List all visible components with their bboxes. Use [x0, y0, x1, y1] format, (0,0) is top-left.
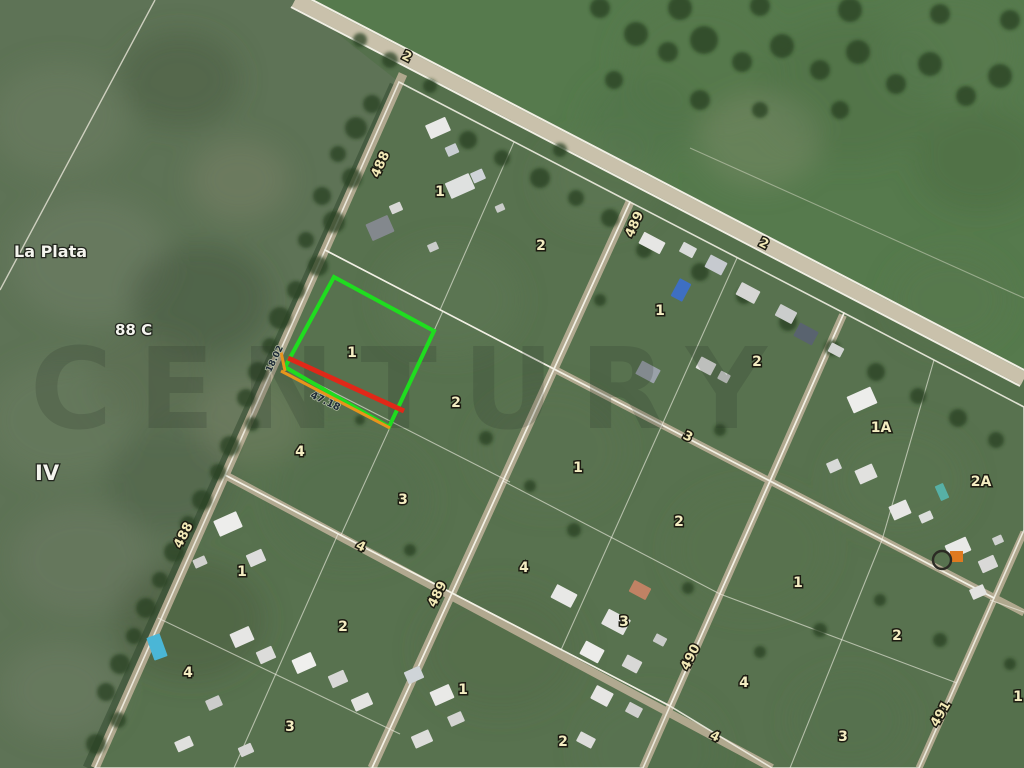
parcel-label: 4 [183, 665, 193, 681]
area-label: IV [35, 461, 60, 485]
tree [658, 42, 678, 62]
tree [530, 168, 550, 188]
tree [86, 734, 106, 754]
tree [152, 572, 168, 588]
tree [682, 582, 694, 594]
area-label: 88 C [115, 321, 152, 339]
tree [886, 74, 906, 94]
tree [813, 623, 827, 637]
parcel-label: 3 [285, 719, 295, 735]
tree [770, 34, 794, 58]
map-canvas[interactable]: CENTURY 2488489234488489490449112121A2A1… [0, 0, 1024, 768]
tree [831, 101, 849, 119]
tree [867, 363, 885, 381]
tree [567, 523, 581, 537]
tree [601, 209, 619, 227]
tree [1004, 658, 1016, 670]
parcel-label: 1 [573, 460, 583, 476]
parcel-label: 3 [838, 729, 848, 745]
tree [605, 71, 623, 89]
parcel-label: 3 [619, 614, 629, 630]
tree [404, 544, 416, 556]
parcel-label: 2 [451, 395, 461, 411]
tree [298, 232, 314, 248]
tree [874, 594, 886, 606]
tree [810, 60, 830, 80]
tree [690, 26, 718, 54]
area-label: La Plata [14, 242, 87, 261]
tree [846, 40, 870, 64]
tree [110, 712, 126, 728]
tree [97, 683, 115, 701]
tree [210, 464, 226, 480]
parcel-label: 1 [435, 184, 445, 200]
tree [754, 646, 766, 658]
tree [192, 490, 212, 510]
tree [910, 388, 926, 404]
tree [624, 22, 648, 46]
tree [382, 52, 398, 68]
tree [568, 190, 584, 206]
tree [594, 294, 606, 306]
tree [287, 281, 305, 299]
watermark-text: CENTURY [30, 325, 793, 455]
tree [553, 143, 567, 157]
tree [988, 432, 1004, 448]
tree [949, 409, 967, 427]
tree [930, 4, 950, 24]
terrain-patch [120, 32, 240, 128]
parcel-label: 2 [674, 514, 684, 530]
tree [988, 64, 1012, 88]
parcel-label: 1A [871, 420, 892, 436]
terrain-patch [190, 140, 290, 220]
parcel-label: 4 [739, 675, 749, 691]
tree [345, 117, 367, 139]
tree [1000, 10, 1020, 30]
satellite-map: CENTURY 2488489234488489490449112121A2A1… [0, 0, 1024, 768]
tree [918, 52, 942, 76]
parcel-label: 3 [398, 492, 408, 508]
parcel-label: 4 [519, 560, 529, 576]
tree [353, 33, 367, 47]
tree [933, 633, 947, 647]
tree [313, 187, 331, 205]
parcel-label: 1 [347, 345, 357, 361]
parcel-label: 1 [793, 575, 803, 591]
tree [110, 654, 130, 674]
tree [126, 628, 142, 644]
parcel-label: 1 [1013, 689, 1023, 705]
tree [308, 256, 328, 276]
parcel-label: 4 [295, 444, 305, 460]
tree [732, 52, 752, 72]
parcel-label: 2 [558, 734, 568, 750]
parcel-label: 2 [338, 619, 348, 635]
tree [342, 168, 362, 188]
parcel-label: 2 [892, 628, 902, 644]
parcel-label: 1 [655, 303, 665, 319]
tree [136, 598, 156, 618]
tree [752, 102, 768, 118]
tree [323, 211, 345, 233]
tree [494, 150, 510, 166]
parcel-label: 1 [237, 564, 247, 580]
parcel-label: 2A [971, 474, 992, 490]
tree [956, 86, 976, 106]
tree [423, 79, 437, 93]
tree [330, 146, 346, 162]
tree [363, 95, 381, 113]
tree [524, 480, 536, 492]
parcel-label: 2 [752, 354, 762, 370]
parcel-label: 2 [536, 238, 546, 254]
tree [690, 90, 710, 110]
tree [459, 131, 477, 149]
parcel-label: 1 [458, 682, 468, 698]
